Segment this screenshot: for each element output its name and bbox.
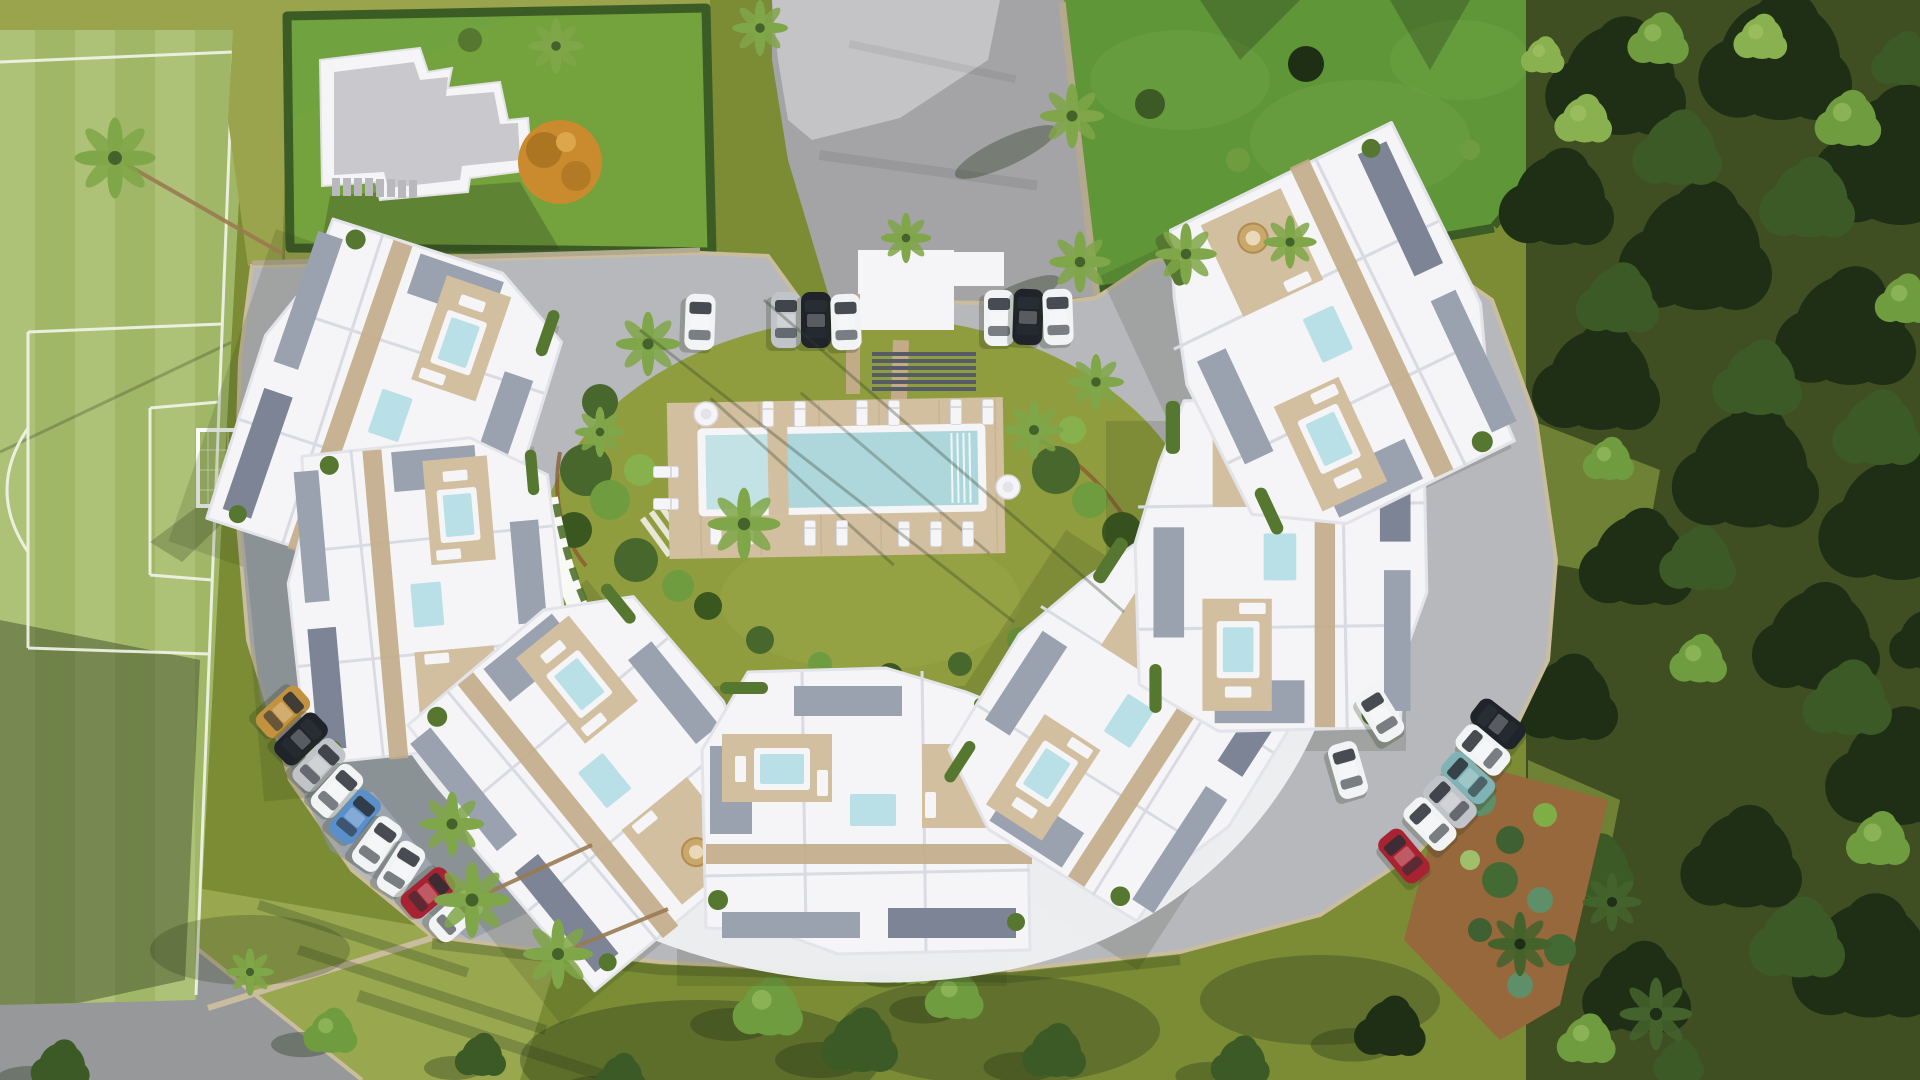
car xyxy=(825,293,862,353)
palm-tree xyxy=(1068,354,1124,410)
sun-lounger xyxy=(654,499,679,510)
palm-tree xyxy=(732,0,788,56)
palm-tree xyxy=(528,18,584,74)
palm-tree xyxy=(1155,223,1217,285)
palm-tree xyxy=(226,948,274,996)
sun-lounger xyxy=(763,402,774,427)
sun-lounger xyxy=(837,521,848,546)
sun-lounger xyxy=(931,522,942,547)
aerial-render xyxy=(0,0,1920,1080)
sun-lounger xyxy=(983,400,994,425)
palm-tree xyxy=(1620,978,1693,1051)
villa-property xyxy=(287,8,712,252)
car xyxy=(766,292,801,351)
sun-lounger xyxy=(795,402,806,427)
car xyxy=(1037,288,1074,348)
palm-tree xyxy=(1049,231,1111,293)
sun-lounger xyxy=(951,400,962,425)
palm-tree xyxy=(1583,873,1642,932)
autumn-tree xyxy=(518,120,602,204)
car xyxy=(679,293,716,353)
palm-tree xyxy=(1040,84,1104,148)
palm-tree xyxy=(708,488,781,561)
round-daybed xyxy=(694,402,718,426)
aerial-site-plan xyxy=(0,0,1920,1080)
palm-tree xyxy=(1005,401,1064,460)
palm-tree xyxy=(881,213,931,263)
palm-tree xyxy=(1263,215,1316,268)
round-daybed xyxy=(996,475,1020,499)
sun-lounger xyxy=(857,401,868,426)
palm-tree xyxy=(616,312,680,376)
palm-tree xyxy=(420,792,484,856)
palm-tree xyxy=(575,407,625,457)
palm-tree xyxy=(1488,912,1552,976)
sun-lounger xyxy=(654,467,679,478)
sun-lounger xyxy=(963,522,974,547)
sun-lounger xyxy=(805,521,816,546)
